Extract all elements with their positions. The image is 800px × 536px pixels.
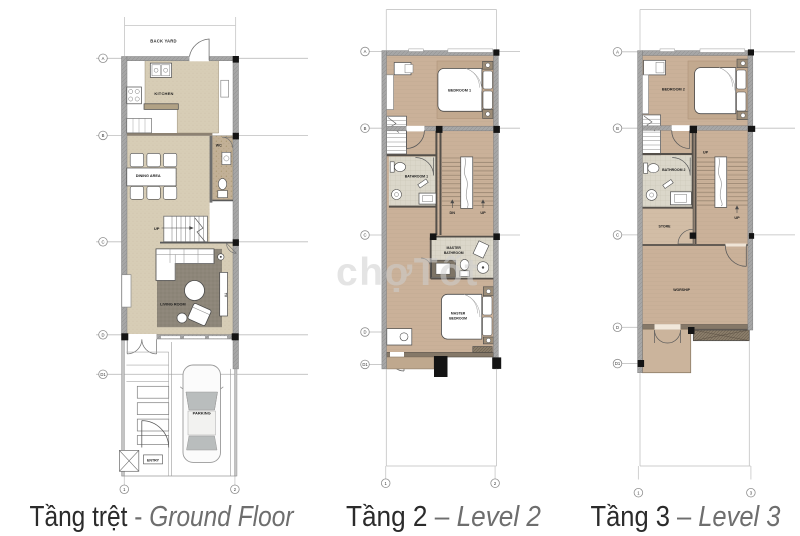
svg-text:chợTốt: chợTốt: [336, 251, 479, 294]
svg-text:STORE: STORE: [659, 225, 672, 229]
svg-text:Tầng trệt - Ground Floor: Tầng trệt - Ground Floor: [30, 501, 295, 533]
svg-text:BATHROOM 1: BATHROOM 1: [405, 175, 428, 179]
svg-text:BEDROOM 2: BEDROOM 2: [662, 88, 685, 92]
svg-text:KITCHEN: KITCHEN: [154, 91, 173, 96]
svg-text:BACK YARD: BACK YARD: [150, 39, 176, 44]
svg-text:LIVING ROOM: LIVING ROOM: [160, 302, 186, 306]
svg-text:C: C: [363, 233, 366, 238]
svg-text:WC: WC: [216, 143, 222, 147]
svg-text:D: D: [616, 325, 619, 330]
svg-text:WORSHIP: WORSHIP: [673, 288, 690, 292]
svg-text:C: C: [101, 239, 104, 244]
svg-text:BEDROOM 1: BEDROOM 1: [448, 89, 471, 93]
svg-text:D1: D1: [362, 362, 368, 367]
svg-text:DN: DN: [450, 211, 456, 215]
svg-text:D: D: [363, 330, 366, 335]
svg-text:UP: UP: [734, 216, 740, 220]
svg-text:B: B: [364, 126, 367, 131]
svg-text:BEDROOM: BEDROOM: [449, 316, 467, 320]
svg-text:Tầng 2 – Level 2: Tầng 2 – Level 2: [346, 501, 541, 533]
svg-text:UP: UP: [154, 226, 160, 231]
svg-text:PARKING: PARKING: [193, 411, 211, 416]
svg-text:MASTER: MASTER: [447, 246, 462, 250]
svg-text:TV: TV: [223, 293, 227, 298]
svg-text:DINING AREA: DINING AREA: [136, 174, 161, 178]
svg-text:C: C: [616, 233, 619, 238]
svg-text:A: A: [616, 49, 619, 54]
svg-text:D: D: [101, 332, 104, 337]
svg-text:D1: D1: [100, 372, 106, 377]
svg-text:BATHROOM 2: BATHROOM 2: [662, 168, 685, 172]
svg-text:Tầng 3 – Level 3: Tầng 3 – Level 3: [591, 501, 781, 533]
svg-text:A: A: [102, 56, 105, 61]
svg-text:ENTRY: ENTRY: [147, 459, 160, 463]
svg-text:D1: D1: [615, 361, 621, 366]
svg-text:A: A: [364, 49, 367, 54]
svg-text:UP: UP: [480, 211, 486, 215]
svg-text:B: B: [102, 133, 105, 138]
svg-text:UP: UP: [703, 151, 709, 155]
svg-text:B: B: [616, 126, 619, 131]
svg-text:MASTER: MASTER: [451, 311, 466, 315]
